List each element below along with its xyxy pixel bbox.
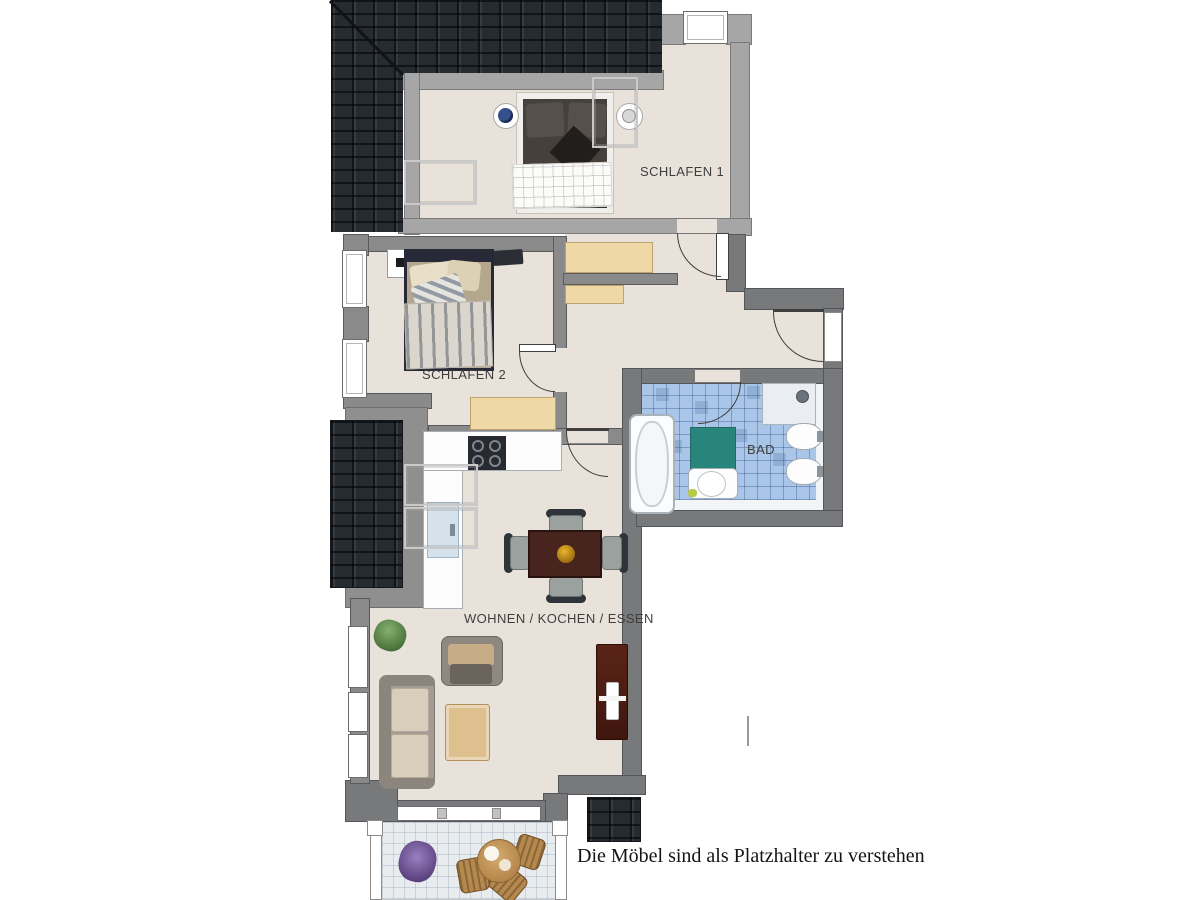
wall (730, 42, 750, 236)
cooktop-burner (489, 455, 501, 467)
balcony-post (552, 820, 568, 836)
bed-pillow (525, 102, 565, 138)
window-living-2 (348, 692, 368, 732)
balcony-post (367, 820, 383, 836)
roof-bottom (587, 797, 641, 842)
window-schlafen1 (683, 11, 728, 44)
room-label-schlafen1: SCHLAFEN 1 (640, 164, 724, 179)
bath-tile-accent (656, 388, 669, 401)
armchair-seat (450, 664, 492, 684)
cooktop-burner (472, 440, 484, 452)
dining-chair (549, 577, 583, 597)
door-opening-schlafen1 (677, 219, 717, 233)
armchair-cushion (448, 644, 494, 666)
shower (762, 383, 816, 425)
roof-left (330, 420, 403, 588)
bath-tile-accent (773, 453, 786, 466)
faucet (817, 466, 823, 477)
wall (404, 70, 420, 235)
skylight-frame (404, 464, 478, 506)
wall (543, 793, 568, 822)
plant-small (688, 489, 697, 497)
room-label-wohnen: WOHNEN / KOCHEN / ESSEN (464, 611, 654, 626)
door-opening-bath (695, 370, 740, 382)
furniture-disclaimer-note: Die Möbel sind als Platzhalter zu verste… (577, 845, 925, 868)
room-label-bad: BAD (747, 442, 775, 457)
wall (726, 14, 752, 45)
window-mullion (492, 808, 501, 819)
bed-blanket (511, 162, 612, 210)
table-plate (484, 846, 499, 861)
wall-shelf (493, 249, 524, 266)
tv-stand (599, 696, 626, 701)
window-frame (687, 15, 724, 40)
skylight-frame (592, 77, 638, 148)
floor-hall-lower (565, 370, 624, 432)
wall (398, 218, 722, 234)
faucet (817, 431, 823, 442)
coffee-table (445, 704, 490, 761)
bath-tile-accent (747, 386, 760, 399)
entrance-opening (824, 312, 842, 362)
table-plate (499, 859, 511, 871)
room-label-schlafen2: SCHLAFEN 2 (422, 367, 506, 382)
tv (606, 682, 619, 720)
door-opening-schlafen2 (553, 348, 567, 392)
window-schlafen2-1 (342, 250, 367, 308)
wall (563, 273, 678, 285)
window-schlafen2-2 (342, 339, 367, 398)
sofa-armrest (379, 675, 435, 686)
plant-nightstand (498, 108, 513, 123)
wall (726, 234, 746, 292)
window-mullion (437, 808, 447, 819)
cooktop-burner (489, 440, 501, 452)
sofa-armrest (379, 778, 435, 789)
wall (744, 288, 844, 310)
wall (558, 775, 646, 795)
window-living-3 (348, 734, 368, 778)
bathtub-basin (635, 421, 669, 507)
window-frame (346, 343, 363, 394)
sofa-backrest (379, 675, 391, 789)
window-living-1 (348, 626, 368, 688)
shower-head (796, 390, 809, 403)
skylight-frame (404, 507, 478, 549)
dimension-tick (747, 716, 749, 746)
dining-chair (602, 536, 622, 570)
bath-mat (690, 427, 736, 472)
window-frame (346, 254, 363, 304)
skylight-frame (404, 160, 477, 205)
wardrobe (565, 285, 624, 304)
balcony-window-band (397, 806, 541, 821)
wall (343, 306, 369, 342)
table-bowl (557, 545, 575, 563)
sofa-cushion (391, 734, 429, 778)
bed-duvet (404, 301, 493, 370)
sofa-cushion (391, 688, 429, 732)
dining-chair (510, 536, 530, 570)
wardrobe (565, 242, 653, 273)
toilet-bowl (697, 471, 726, 497)
dresser (470, 397, 556, 430)
wall (823, 368, 843, 527)
floor-plan: SCHLAFEN 1 SCHLAFEN 2 BAD WOHNEN / KOCHE… (0, 0, 1200, 900)
